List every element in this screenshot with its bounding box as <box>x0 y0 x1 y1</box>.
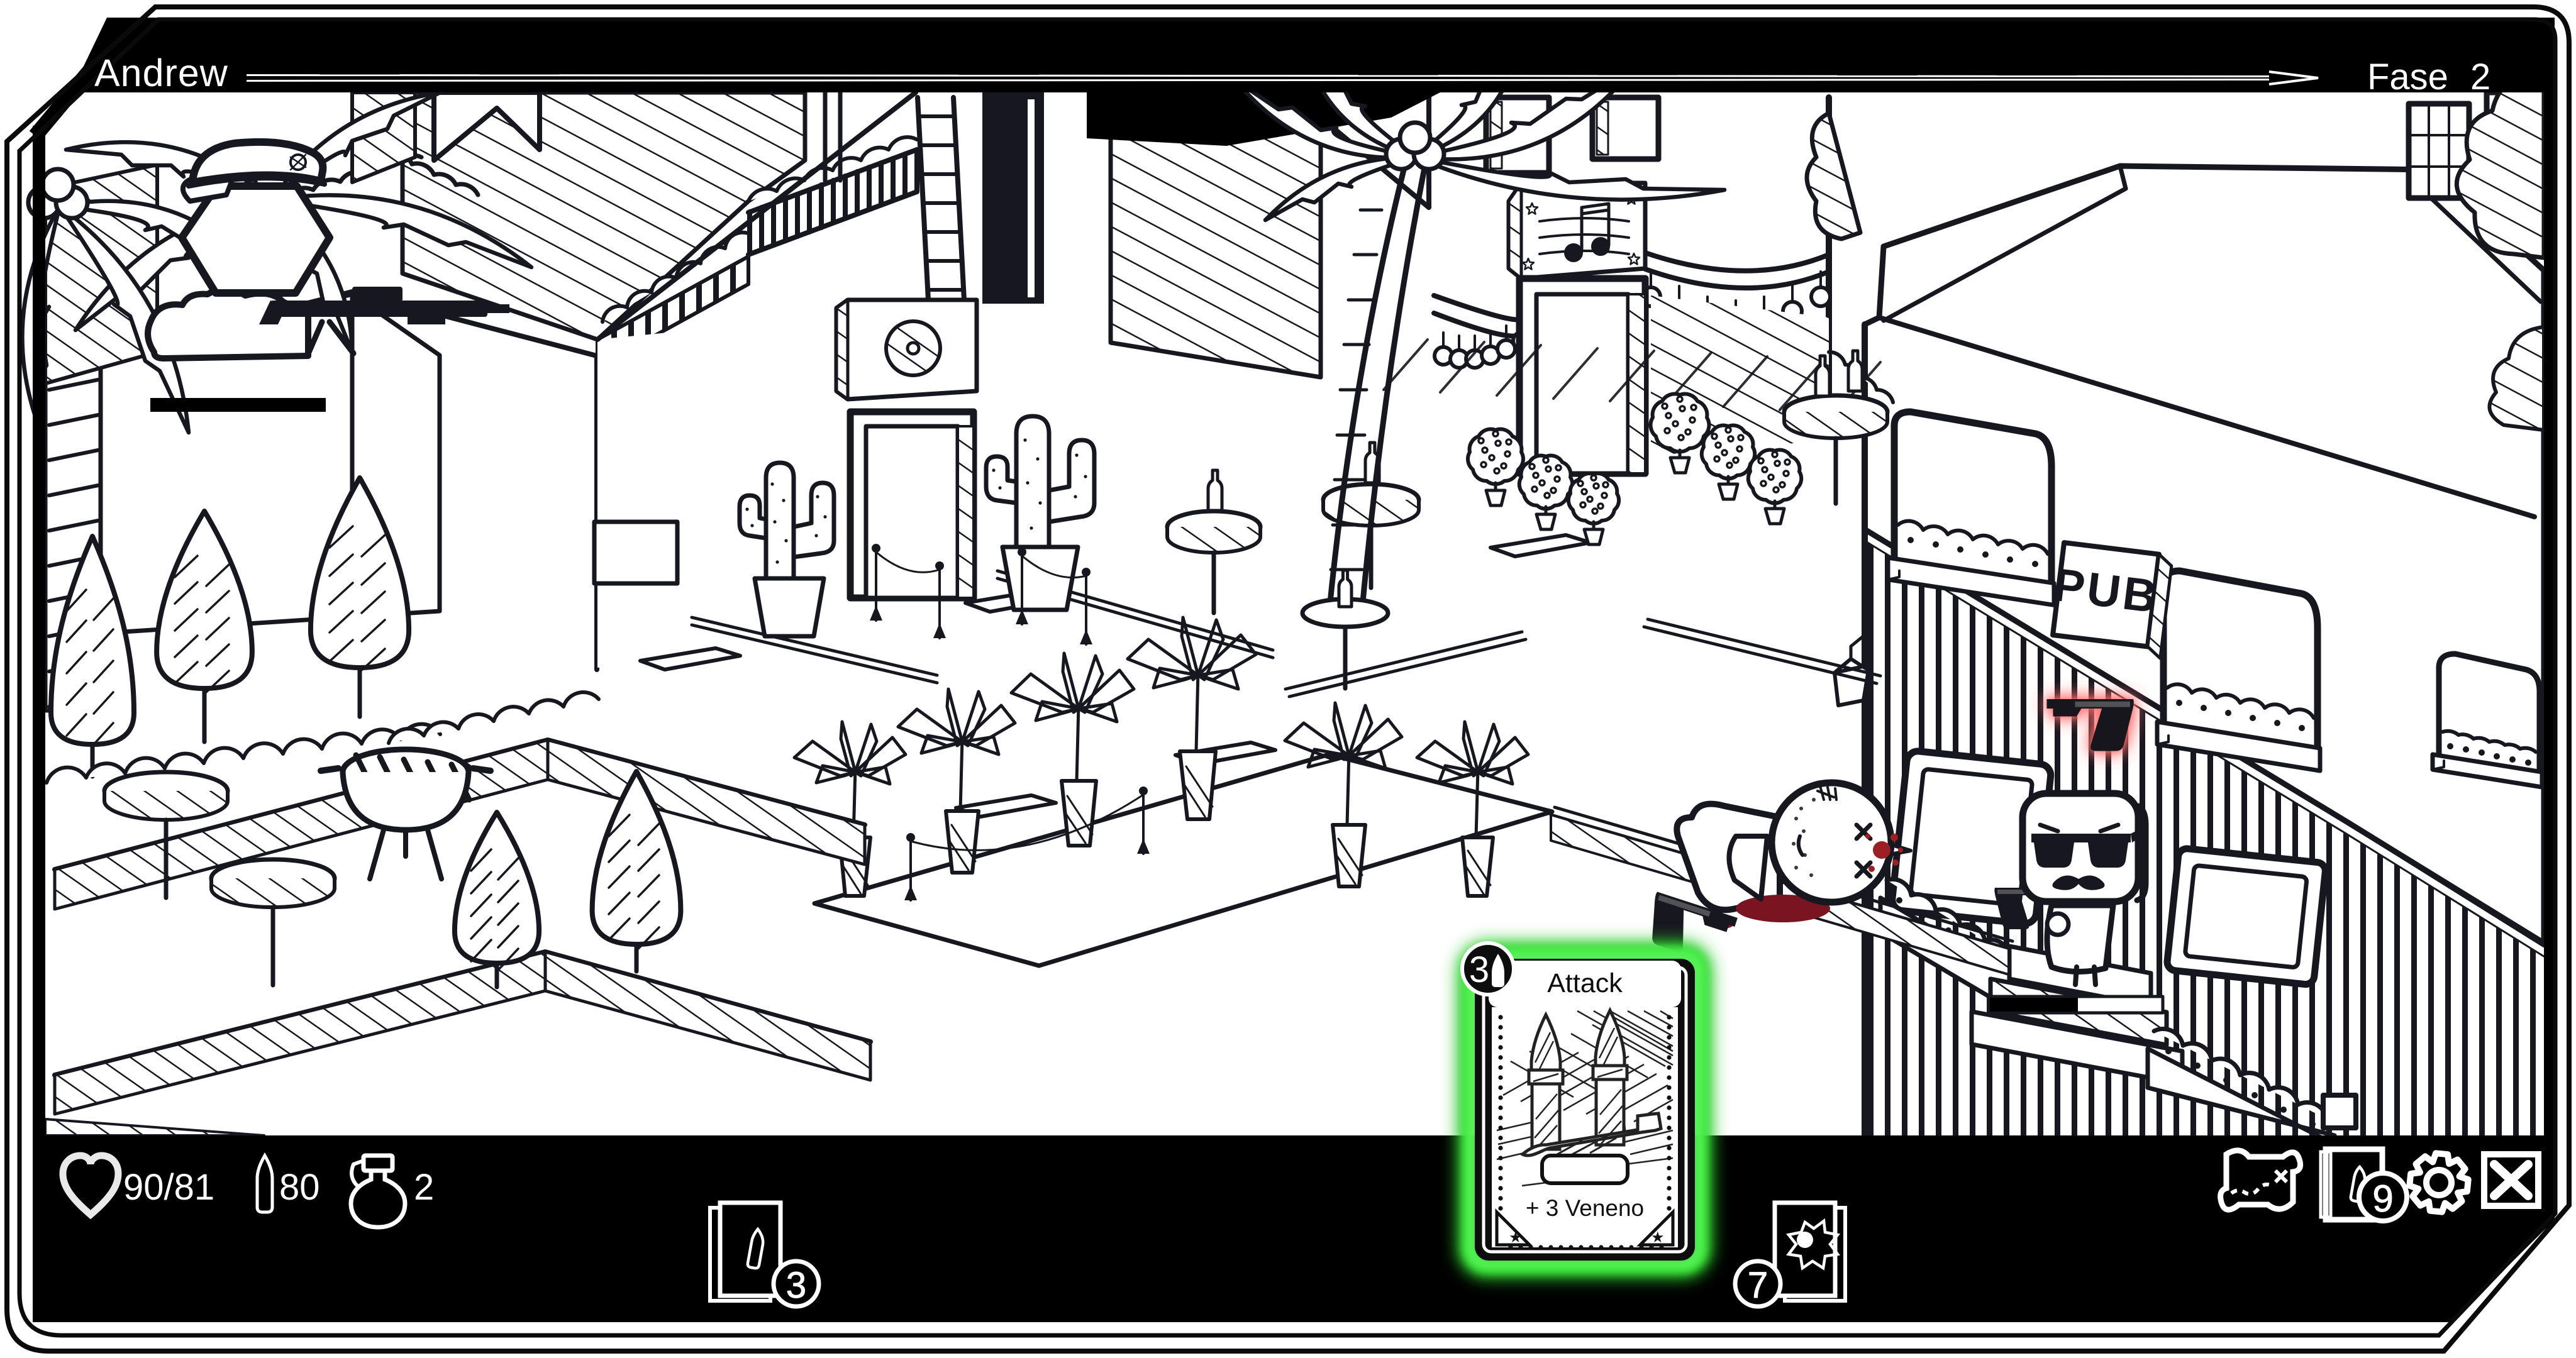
svg-text:Andrew: Andrew <box>94 52 228 94</box>
svg-text:+ 3 Veneno: + 3 Veneno <box>1526 1195 1644 1221</box>
svg-text:2: 2 <box>2470 57 2490 97</box>
svg-text:7: 7 <box>1748 1265 1768 1306</box>
svg-text:Attack: Attack <box>1547 968 1623 998</box>
svg-text:3: 3 <box>786 1265 806 1306</box>
svg-text:90/81: 90/81 <box>123 1167 214 1208</box>
svg-text:★: ★ <box>1509 1229 1523 1246</box>
svg-text:3: 3 <box>1469 949 1489 990</box>
svg-text:Fase: Fase <box>2367 57 2448 97</box>
svg-text:2: 2 <box>414 1167 434 1208</box>
svg-text:80: 80 <box>279 1167 320 1208</box>
svg-text:9: 9 <box>2372 1178 2393 1220</box>
svg-text:★: ★ <box>1651 1229 1665 1246</box>
